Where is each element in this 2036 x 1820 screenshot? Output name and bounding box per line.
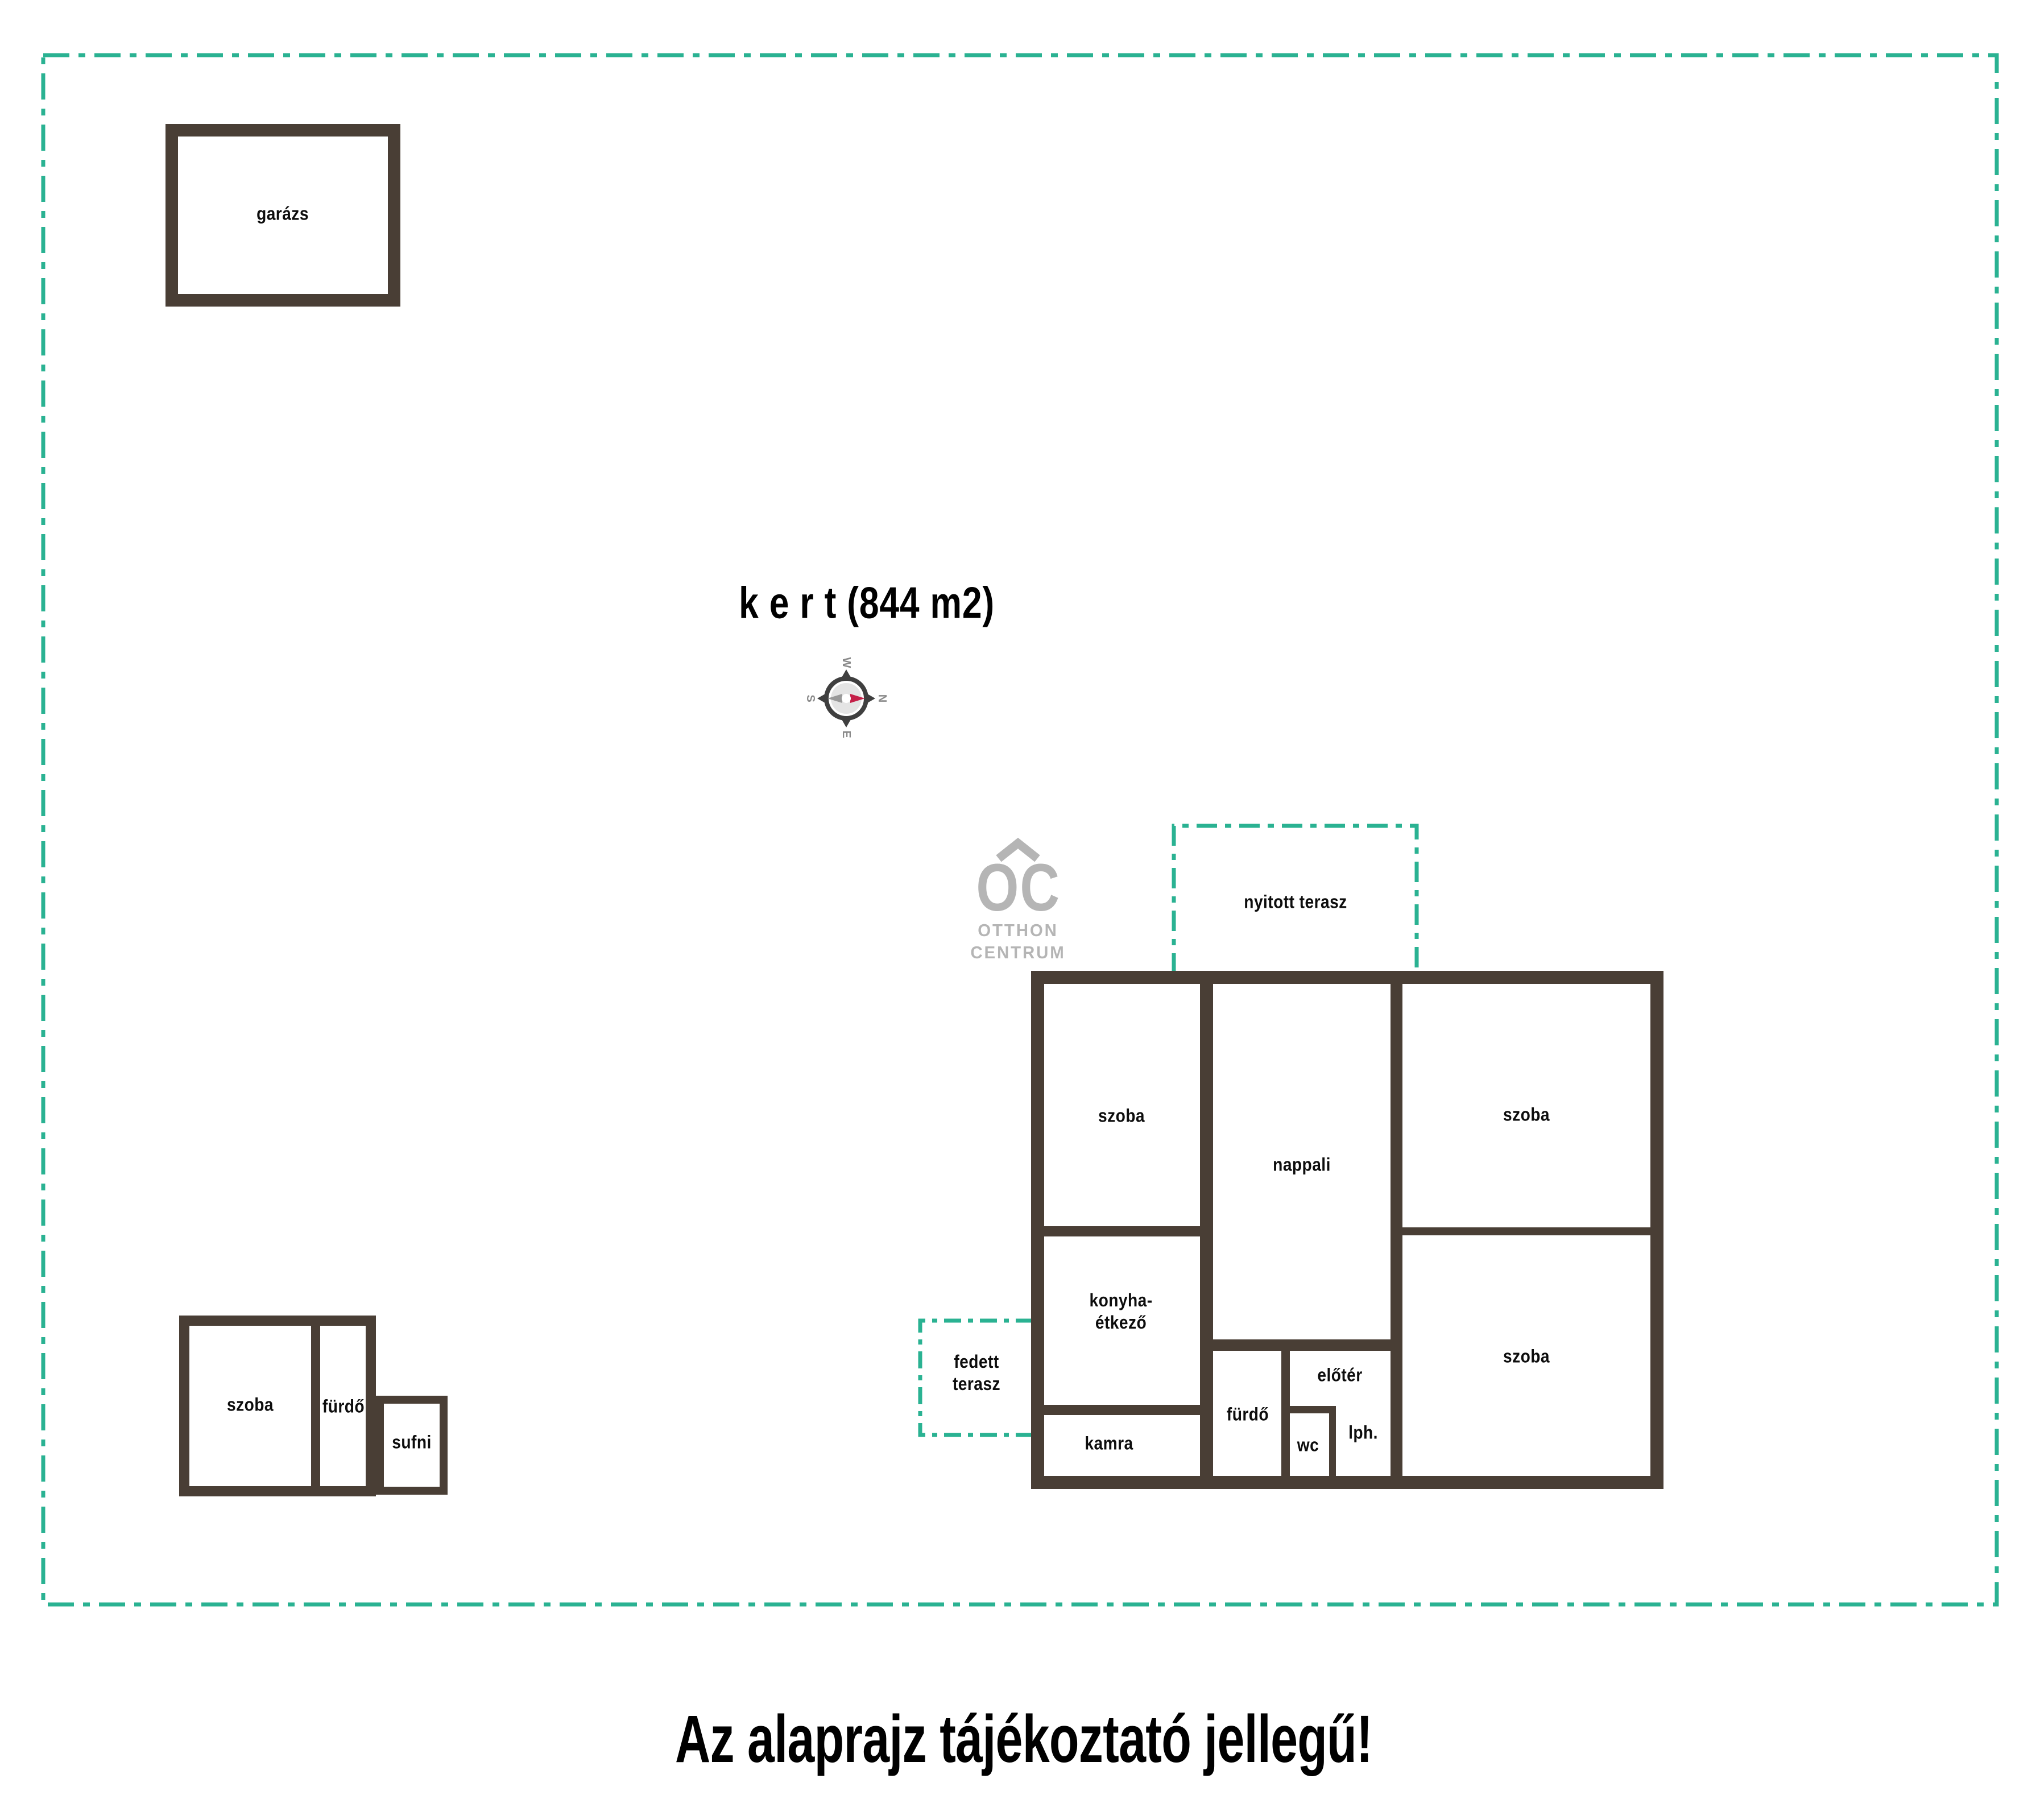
annex-room-bath-wall bbox=[311, 1326, 320, 1486]
garden-area-label: k e r t (844 m2) bbox=[739, 577, 995, 629]
wall-wc-staircase bbox=[1329, 1406, 1336, 1477]
disclaimer-text: Az alaprajz tájékoztató jellegű! bbox=[675, 1701, 1372, 1778]
room-top-left-label: szoba bbox=[1098, 1105, 1145, 1127]
kitchen-dining-label: konyha- étkező bbox=[1089, 1289, 1152, 1334]
garage-label: garázs bbox=[256, 202, 309, 225]
annex-shed-label: sufni bbox=[392, 1431, 431, 1453]
compass-letter-north: N bbox=[876, 694, 888, 702]
wall-room-tl-nappali bbox=[1200, 983, 1213, 1477]
annex-room-label: szoba bbox=[227, 1393, 274, 1416]
compass-letter-south: S bbox=[804, 694, 817, 702]
pantry-label: kamra bbox=[1085, 1432, 1133, 1454]
logo-word-otthon: OTTHON bbox=[905, 920, 1132, 942]
logo-monogram: OC bbox=[976, 856, 1060, 920]
otthon-centrum-watermark: OC OTTHON CENTRUM bbox=[899, 856, 1137, 964]
compass-letter-west: W bbox=[840, 657, 853, 668]
compass-rose: W N E S bbox=[804, 657, 888, 738]
wall-nappali-hall bbox=[1213, 1339, 1391, 1351]
compass-letter-east: E bbox=[840, 730, 853, 738]
hall-label: előtér bbox=[1317, 1364, 1362, 1386]
kitchen-dining-line2: étkező bbox=[1089, 1312, 1152, 1334]
kitchen-dining-line1: konyha- bbox=[1089, 1289, 1152, 1312]
wall-kitchen-pantry bbox=[1044, 1405, 1201, 1415]
covered-terrace-line2: terasz bbox=[953, 1373, 1000, 1395]
wall-wc-top bbox=[1290, 1406, 1336, 1413]
wall-bath-hall bbox=[1281, 1351, 1290, 1477]
wall-nappali-room-tr bbox=[1391, 983, 1402, 1477]
room-bottom-right-label: szoba bbox=[1503, 1345, 1550, 1367]
covered-terrace-line1: fedett bbox=[953, 1351, 1000, 1373]
main-house-structure bbox=[1038, 978, 1657, 1483]
room-top-right-label: szoba bbox=[1503, 1103, 1550, 1126]
annex-bath-label: fürdő bbox=[322, 1395, 365, 1417]
staircase-label: lph. bbox=[1348, 1421, 1378, 1443]
compass-hub bbox=[842, 694, 851, 703]
wall-room-tl-kitchen bbox=[1044, 1226, 1201, 1236]
floor-plan-canvas: W N E S OC OTTHON CENTRUM k e r t (844 m… bbox=[0, 0, 2036, 1820]
annex-structure bbox=[184, 1321, 444, 1491]
logo-word-centrum: CENTRUM bbox=[905, 942, 1132, 964]
wc-label: wc bbox=[1297, 1434, 1319, 1456]
wall-room-tr-room-br bbox=[1402, 1227, 1652, 1235]
covered-terrace-label: fedett terasz bbox=[953, 1351, 1000, 1395]
house-bath-label: fürdő bbox=[1227, 1403, 1269, 1425]
open-terrace-label: nyitott terasz bbox=[1244, 891, 1347, 913]
living-room-label: nappali bbox=[1273, 1153, 1331, 1176]
